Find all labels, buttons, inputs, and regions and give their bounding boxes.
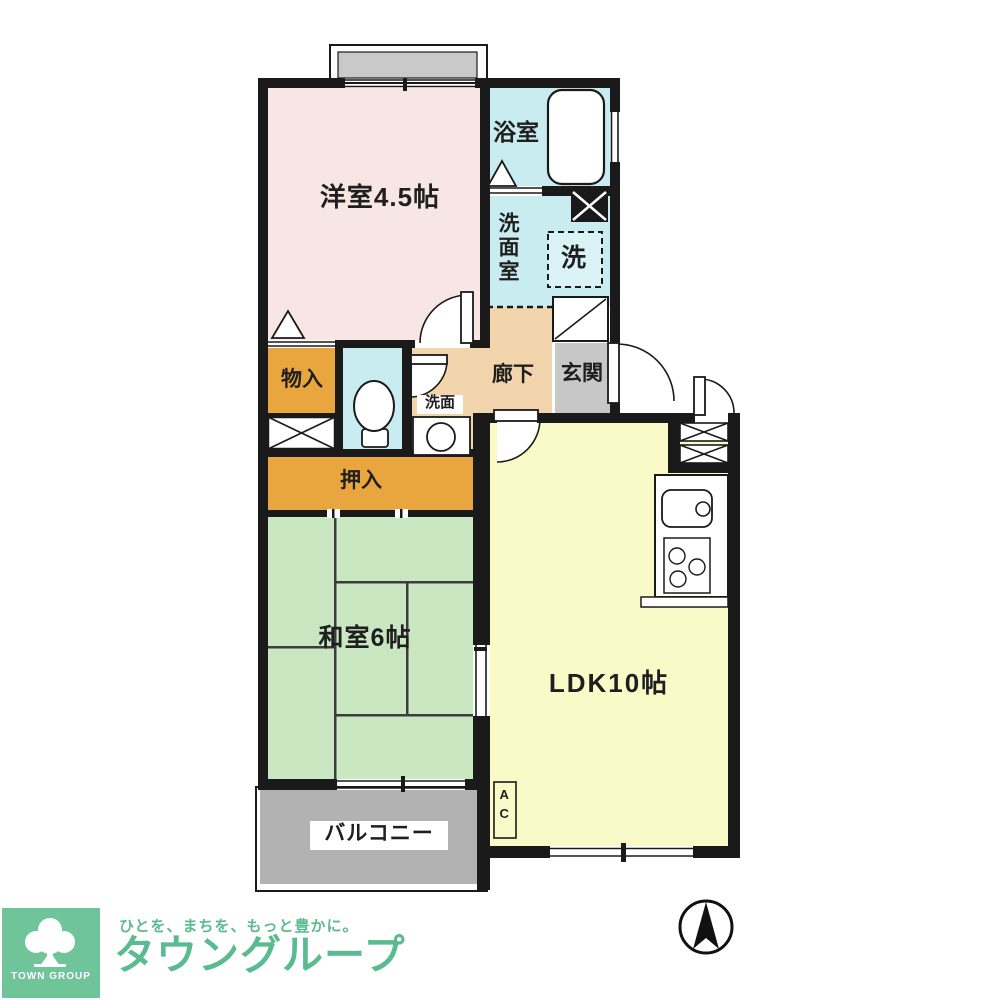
footer-brand-logo: タウングループ — [114, 934, 406, 977]
bath-label: 浴室 — [488, 120, 544, 144]
japanese-room-label: 和室6帖 — [280, 625, 450, 651]
washroom-label: 洗面室 — [496, 212, 518, 284]
hallway-floor-b — [487, 307, 553, 348]
western-room-label: 洋室4.5帖 — [280, 184, 480, 211]
closet-label: 押入 — [334, 470, 388, 492]
entrance-door-leaf — [608, 343, 619, 403]
kitchen-faucet — [696, 502, 710, 516]
ac-unit-label: AC — [497, 787, 511, 825]
entrance-label: 玄関 — [555, 363, 609, 385]
washer-label: 洗 — [561, 245, 586, 271]
north-compass — [680, 901, 732, 953]
upper-balcony — [330, 45, 487, 83]
toilet-door-leaf — [411, 355, 447, 364]
town-group-text: TOWN GROUP — [2, 972, 100, 983]
entrance-door-swing — [617, 344, 674, 401]
ldk-door-leaf — [494, 410, 538, 421]
kitchen-unit — [641, 475, 728, 607]
washbasin-counter — [413, 417, 470, 455]
western-room-door-leaf — [461, 292, 473, 343]
storage-label: 物入 — [275, 369, 329, 391]
balcony-label: バルコニー — [310, 823, 448, 845]
pipe-space-black-box — [571, 190, 608, 222]
ldk-label: LDK10帖 — [519, 670, 699, 697]
washbasin-label: 洗面 — [417, 395, 463, 414]
bathtub — [548, 90, 604, 184]
shoe-cabinet — [553, 297, 608, 341]
hallway-label: 廊下 — [486, 364, 540, 386]
storage-x-box — [268, 417, 335, 449]
logo-square — [2, 908, 100, 998]
meterbox-door-leaf — [694, 377, 705, 415]
floorplan-drawing — [0, 0, 1000, 1000]
floorplan-page: 洋室4.5帖 浴室 洗面室 洗 廊下 玄関 物入 洗面 押入 和室6帖 LDK1… — [0, 0, 1000, 1000]
